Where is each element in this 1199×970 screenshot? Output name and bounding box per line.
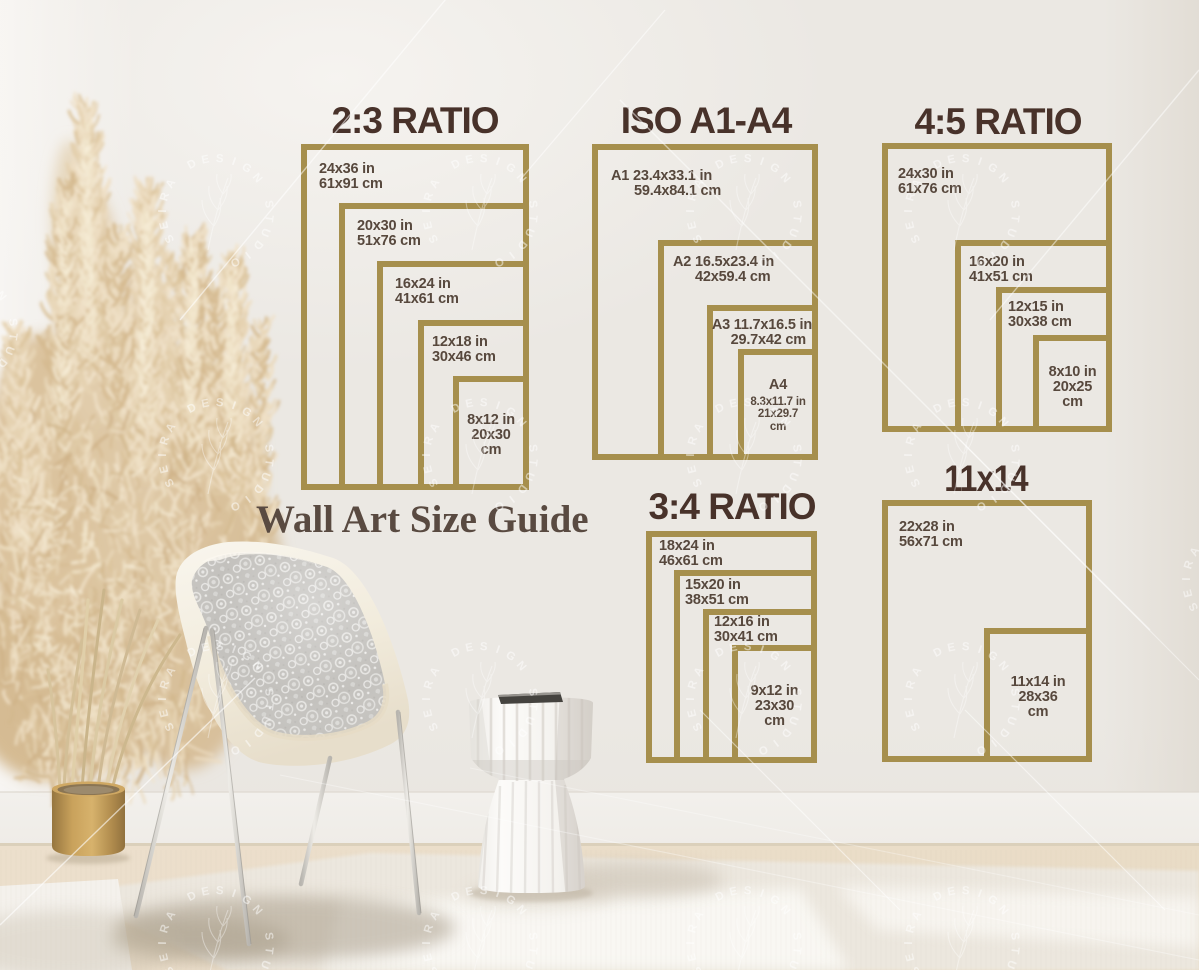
svg-text:D: D xyxy=(450,645,463,659)
svg-text:A: A xyxy=(164,177,179,190)
svg-text:O: O xyxy=(229,254,242,268)
svg-text:S: S xyxy=(961,641,970,654)
svg-text:S: S xyxy=(1008,931,1021,941)
svg-text:T: T xyxy=(262,702,275,710)
svg-text:G: G xyxy=(239,893,253,908)
svg-text:S: S xyxy=(262,443,275,453)
svg-text:O: O xyxy=(757,254,770,268)
svg-text:U: U xyxy=(258,470,272,482)
svg-text:T: T xyxy=(526,458,539,466)
svg-text:S: S xyxy=(1008,199,1021,209)
svg-text:G: G xyxy=(503,649,517,664)
svg-text:D: D xyxy=(450,401,463,415)
svg-text:I: I xyxy=(903,941,915,944)
svg-text:S: S xyxy=(961,885,970,898)
svg-text:D: D xyxy=(250,238,265,252)
svg-text:A: A xyxy=(428,177,443,190)
svg-text:A: A xyxy=(910,421,925,434)
svg-text:D: D xyxy=(778,238,793,252)
svg-text:T: T xyxy=(1008,458,1021,466)
svg-text:N: N xyxy=(250,171,265,185)
svg-text:I: I xyxy=(771,493,781,505)
svg-text:U: U xyxy=(2,344,16,356)
svg-text:T: T xyxy=(262,946,275,954)
svg-text:I: I xyxy=(157,697,169,700)
svg-text:T: T xyxy=(1008,946,1021,954)
svg-text:O: O xyxy=(229,498,242,512)
svg-text:I: I xyxy=(976,400,983,412)
svg-text:D: D xyxy=(186,157,199,171)
svg-text:A: A xyxy=(910,665,925,678)
svg-text:R: R xyxy=(422,191,436,203)
svg-text:I: I xyxy=(758,156,765,168)
svg-text:D: D xyxy=(996,238,1011,252)
svg-text:D: D xyxy=(450,157,463,171)
svg-text:N: N xyxy=(996,415,1011,429)
svg-text:S: S xyxy=(743,885,752,898)
svg-text:R: R xyxy=(422,679,436,691)
svg-text:S: S xyxy=(961,397,970,410)
svg-text:T: T xyxy=(1008,702,1021,710)
svg-text:U: U xyxy=(522,226,536,238)
svg-text:I: I xyxy=(507,493,517,505)
svg-text:E: E xyxy=(422,952,436,963)
svg-text:R: R xyxy=(686,679,700,691)
svg-text:G: G xyxy=(767,161,781,176)
svg-text:S: S xyxy=(743,397,752,410)
svg-text:G: G xyxy=(985,893,999,908)
svg-text:S: S xyxy=(961,153,970,166)
svg-text:I: I xyxy=(230,644,237,656)
svg-text:I: I xyxy=(1181,577,1193,580)
svg-text:I: I xyxy=(903,697,915,700)
svg-text:T: T xyxy=(262,458,275,466)
svg-text:A: A xyxy=(428,909,443,922)
svg-text:E: E xyxy=(946,885,956,898)
svg-text:G: G xyxy=(985,649,999,664)
svg-text:S: S xyxy=(790,687,803,697)
svg-text:U: U xyxy=(258,226,272,238)
svg-text:E: E xyxy=(904,708,918,719)
svg-text:D: D xyxy=(514,482,529,496)
svg-text:D: D xyxy=(714,889,727,903)
svg-text:E: E xyxy=(904,952,918,963)
svg-text:I: I xyxy=(230,400,237,412)
svg-text:T: T xyxy=(790,946,803,954)
svg-text:O: O xyxy=(493,498,506,512)
svg-text:I: I xyxy=(494,156,501,168)
svg-text:U: U xyxy=(258,714,272,726)
svg-text:I: I xyxy=(989,249,999,261)
svg-text:S: S xyxy=(479,153,488,166)
svg-text:I: I xyxy=(507,249,517,261)
svg-text:G: G xyxy=(985,405,999,420)
svg-text:R: R xyxy=(422,923,436,935)
svg-text:S: S xyxy=(691,964,705,970)
svg-text:E: E xyxy=(464,885,474,898)
svg-text:N: N xyxy=(514,659,529,673)
svg-text:S: S xyxy=(215,885,224,898)
svg-text:G: G xyxy=(239,161,253,176)
svg-text:O: O xyxy=(975,498,988,512)
svg-text:E: E xyxy=(422,220,436,231)
svg-text:N: N xyxy=(996,903,1011,917)
svg-text:D: D xyxy=(0,356,9,370)
svg-text:I: I xyxy=(230,888,237,900)
svg-text:E: E xyxy=(200,397,210,410)
svg-text:S: S xyxy=(691,476,705,489)
svg-text:N: N xyxy=(514,415,529,429)
svg-text:E: E xyxy=(158,708,172,719)
svg-text:I: I xyxy=(421,697,433,700)
svg-text:R: R xyxy=(904,435,918,447)
svg-text:U: U xyxy=(786,226,800,238)
svg-text:A: A xyxy=(910,177,925,190)
svg-text:S: S xyxy=(163,476,177,489)
svg-text:G: G xyxy=(239,405,253,420)
svg-text:A: A xyxy=(692,909,707,922)
svg-text:A: A xyxy=(692,665,707,678)
svg-text:S: S xyxy=(427,964,441,970)
svg-text:T: T xyxy=(526,946,539,954)
svg-text:R: R xyxy=(158,923,172,935)
svg-text:I: I xyxy=(243,249,253,261)
svg-text:S: S xyxy=(1187,600,1199,613)
svg-text:A: A xyxy=(428,665,443,678)
svg-text:G: G xyxy=(503,161,517,176)
svg-text:S: S xyxy=(427,720,441,733)
svg-text:S: S xyxy=(427,232,441,245)
svg-text:U: U xyxy=(1004,470,1018,482)
svg-text:R: R xyxy=(1182,559,1196,571)
svg-text:E: E xyxy=(200,153,210,166)
svg-text:S: S xyxy=(790,199,803,209)
svg-text:N: N xyxy=(996,659,1011,673)
svg-text:D: D xyxy=(996,726,1011,740)
svg-text:A: A xyxy=(428,421,443,434)
svg-text:S: S xyxy=(790,931,803,941)
svg-text:I: I xyxy=(243,493,253,505)
svg-text:D: D xyxy=(514,238,529,252)
svg-text:I: I xyxy=(685,453,697,456)
svg-text:D: D xyxy=(250,482,265,496)
svg-text:E: E xyxy=(686,708,700,719)
svg-text:S: S xyxy=(743,153,752,166)
svg-text:O: O xyxy=(757,498,770,512)
svg-text:E: E xyxy=(158,952,172,963)
svg-text:T: T xyxy=(790,458,803,466)
svg-text:D: D xyxy=(778,482,793,496)
svg-text:O: O xyxy=(757,742,770,756)
svg-text:N: N xyxy=(778,171,793,185)
svg-text:S: S xyxy=(479,641,488,654)
svg-text:E: E xyxy=(728,153,738,166)
svg-text:R: R xyxy=(158,435,172,447)
svg-text:U: U xyxy=(522,958,536,970)
svg-text:I: I xyxy=(507,737,517,749)
svg-text:S: S xyxy=(427,476,441,489)
svg-text:U: U xyxy=(1004,226,1018,238)
svg-text:S: S xyxy=(909,720,923,733)
svg-text:E: E xyxy=(904,220,918,231)
svg-text:U: U xyxy=(258,958,272,970)
svg-text:E: E xyxy=(464,397,474,410)
svg-text:S: S xyxy=(215,641,224,654)
svg-text:O: O xyxy=(493,254,506,268)
svg-text:I: I xyxy=(243,737,253,749)
svg-text:E: E xyxy=(946,153,956,166)
svg-text:A: A xyxy=(910,909,925,922)
svg-text:G: G xyxy=(239,649,253,664)
svg-text:A: A xyxy=(692,421,707,434)
svg-text:N: N xyxy=(250,659,265,673)
svg-text:E: E xyxy=(158,464,172,475)
svg-text:R: R xyxy=(686,435,700,447)
svg-text:N: N xyxy=(778,903,793,917)
svg-text:I: I xyxy=(230,156,237,168)
svg-text:S: S xyxy=(6,317,19,327)
svg-text:E: E xyxy=(200,885,210,898)
svg-text:I: I xyxy=(976,644,983,656)
svg-text:S: S xyxy=(163,964,177,970)
svg-text:I: I xyxy=(157,209,169,212)
svg-text:E: E xyxy=(686,220,700,231)
svg-text:R: R xyxy=(158,191,172,203)
svg-text:E: E xyxy=(1182,588,1196,599)
svg-text:D: D xyxy=(932,645,945,659)
svg-text:E: E xyxy=(728,885,738,898)
svg-text:E: E xyxy=(946,641,956,654)
svg-text:S: S xyxy=(262,687,275,697)
svg-text:N: N xyxy=(250,903,265,917)
svg-text:S: S xyxy=(691,720,705,733)
svg-text:U: U xyxy=(522,714,536,726)
svg-text:S: S xyxy=(909,232,923,245)
svg-text:T: T xyxy=(526,702,539,710)
svg-text:I: I xyxy=(494,644,501,656)
svg-text:A: A xyxy=(164,421,179,434)
svg-text:I: I xyxy=(989,493,999,505)
svg-text:S: S xyxy=(790,443,803,453)
svg-text:I: I xyxy=(758,400,765,412)
svg-text:T: T xyxy=(6,332,19,340)
svg-text:E: E xyxy=(728,397,738,410)
svg-text:S: S xyxy=(479,885,488,898)
svg-text:D: D xyxy=(778,726,793,740)
svg-text:E: E xyxy=(946,397,956,410)
svg-text:G: G xyxy=(767,405,781,420)
svg-text:N: N xyxy=(778,415,793,429)
svg-text:S: S xyxy=(526,443,539,453)
svg-text:S: S xyxy=(215,153,224,166)
svg-text:D: D xyxy=(514,726,529,740)
svg-text:E: E xyxy=(200,641,210,654)
svg-text:I: I xyxy=(421,209,433,212)
svg-text:E: E xyxy=(904,464,918,475)
svg-text:D: D xyxy=(186,889,199,903)
svg-text:G: G xyxy=(985,161,999,176)
svg-text:N: N xyxy=(778,659,793,673)
svg-text:R: R xyxy=(686,191,700,203)
svg-text:G: G xyxy=(503,893,517,908)
svg-text:N: N xyxy=(0,289,8,303)
svg-text:I: I xyxy=(771,737,781,749)
svg-text:D: D xyxy=(250,726,265,740)
svg-text:T: T xyxy=(526,214,539,222)
svg-text:D: D xyxy=(714,401,727,415)
svg-text:D: D xyxy=(714,157,727,171)
svg-text:S: S xyxy=(479,397,488,410)
svg-text:R: R xyxy=(686,923,700,935)
svg-text:D: D xyxy=(932,889,945,903)
svg-text:D: D xyxy=(186,401,199,415)
svg-text:G: G xyxy=(503,405,517,420)
svg-text:T: T xyxy=(790,702,803,710)
svg-text:U: U xyxy=(786,470,800,482)
svg-text:I: I xyxy=(758,644,765,656)
svg-text:I: I xyxy=(421,453,433,456)
svg-text:I: I xyxy=(494,400,501,412)
svg-text:R: R xyxy=(422,435,436,447)
svg-text:U: U xyxy=(786,714,800,726)
svg-text:I: I xyxy=(685,697,697,700)
svg-text:I: I xyxy=(685,209,697,212)
svg-text:S: S xyxy=(691,232,705,245)
svg-text:O: O xyxy=(229,742,242,756)
svg-text:R: R xyxy=(904,191,918,203)
svg-text:S: S xyxy=(163,232,177,245)
svg-text:N: N xyxy=(996,171,1011,185)
svg-text:U: U xyxy=(522,470,536,482)
svg-text:D: D xyxy=(932,157,945,171)
svg-text:R: R xyxy=(158,679,172,691)
svg-text:D: D xyxy=(186,645,199,659)
svg-text:S: S xyxy=(743,641,752,654)
svg-text:E: E xyxy=(422,708,436,719)
svg-text:N: N xyxy=(250,415,265,429)
svg-text:S: S xyxy=(1008,687,1021,697)
svg-text:S: S xyxy=(215,397,224,410)
svg-text:S: S xyxy=(909,964,923,970)
svg-text:I: I xyxy=(157,941,169,944)
svg-text:A: A xyxy=(1188,545,1199,558)
svg-text:U: U xyxy=(1004,714,1018,726)
svg-text:N: N xyxy=(514,903,529,917)
svg-text:I: I xyxy=(903,209,915,212)
svg-text:E: E xyxy=(464,153,474,166)
svg-text:R: R xyxy=(904,923,918,935)
svg-text:A: A xyxy=(164,909,179,922)
svg-text:O: O xyxy=(493,742,506,756)
svg-text:I: I xyxy=(976,888,983,900)
svg-text:I: I xyxy=(758,888,765,900)
svg-text:E: E xyxy=(686,952,700,963)
svg-text:G: G xyxy=(767,649,781,664)
svg-text:I: I xyxy=(903,453,915,456)
svg-text:U: U xyxy=(1004,958,1018,970)
svg-text:O: O xyxy=(975,254,988,268)
svg-text:E: E xyxy=(464,641,474,654)
svg-text:T: T xyxy=(1008,214,1021,222)
svg-text:O: O xyxy=(975,742,988,756)
svg-text:A: A xyxy=(164,665,179,678)
svg-text:I: I xyxy=(494,888,501,900)
svg-text:E: E xyxy=(158,220,172,231)
svg-text:S: S xyxy=(526,199,539,209)
svg-text:R: R xyxy=(904,679,918,691)
svg-text:I: I xyxy=(976,156,983,168)
svg-text:T: T xyxy=(790,214,803,222)
svg-text:S: S xyxy=(1008,443,1021,453)
svg-text:S: S xyxy=(526,687,539,697)
svg-text:S: S xyxy=(262,931,275,941)
svg-text:E: E xyxy=(686,464,700,475)
svg-text:U: U xyxy=(786,958,800,970)
svg-text:S: S xyxy=(909,476,923,489)
svg-text:G: G xyxy=(767,893,781,908)
svg-text:I: I xyxy=(421,941,433,944)
svg-text:I: I xyxy=(685,941,697,944)
svg-text:E: E xyxy=(422,464,436,475)
svg-text:I: I xyxy=(157,453,169,456)
svg-text:S: S xyxy=(163,720,177,733)
svg-text:E: E xyxy=(728,641,738,654)
svg-text:D: D xyxy=(714,645,727,659)
svg-text:S: S xyxy=(526,931,539,941)
svg-text:D: D xyxy=(450,889,463,903)
